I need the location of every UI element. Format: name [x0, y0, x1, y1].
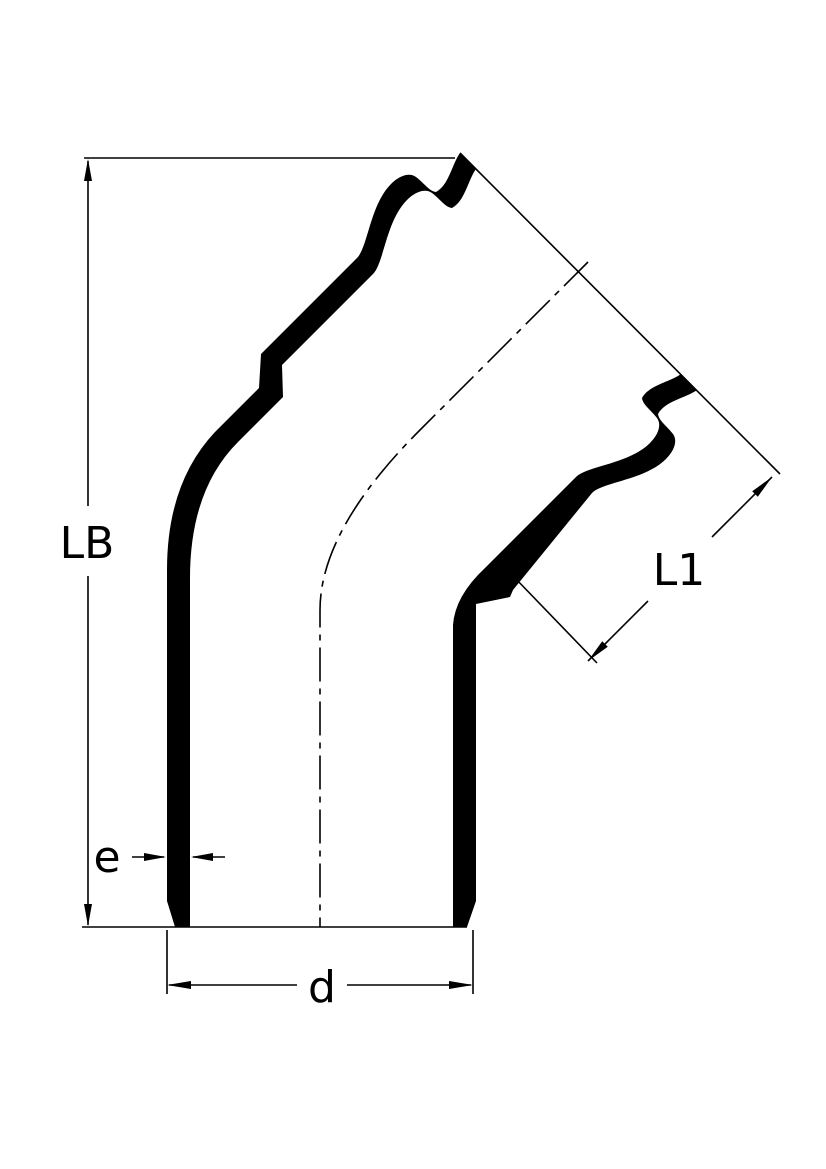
dimension-label-l1: L1 — [653, 545, 706, 596]
lb-arrow-down — [84, 904, 92, 926]
e-arrow-left — [144, 853, 166, 861]
dimension-label-lb: LB — [60, 518, 115, 569]
lb-arrow-up — [84, 159, 92, 181]
l1-arrow-upper — [752, 477, 772, 497]
socket-mouth-edge — [460, 153, 780, 474]
dimension-lb: LB — [60, 158, 467, 927]
d-arrow-left — [167, 981, 191, 989]
dimension-label-e: e — [93, 832, 120, 883]
dimension-label-d: d — [308, 962, 336, 1013]
l1-arrow-lower — [588, 641, 608, 661]
dimension-e: e — [93, 832, 225, 883]
elbow-upper-wall — [167, 153, 476, 927]
technical-drawing-page: LB L1 e d — [0, 0, 826, 1169]
e-arrow-right — [191, 853, 213, 861]
l1-extension-step — [515, 578, 597, 663]
dimension-d: d — [167, 930, 473, 1013]
d-arrow-right — [449, 981, 473, 989]
elbow-drawing: LB L1 e d — [0, 0, 826, 1169]
elbow-lower-wall — [453, 374, 697, 927]
elbow-body — [167, 153, 780, 927]
